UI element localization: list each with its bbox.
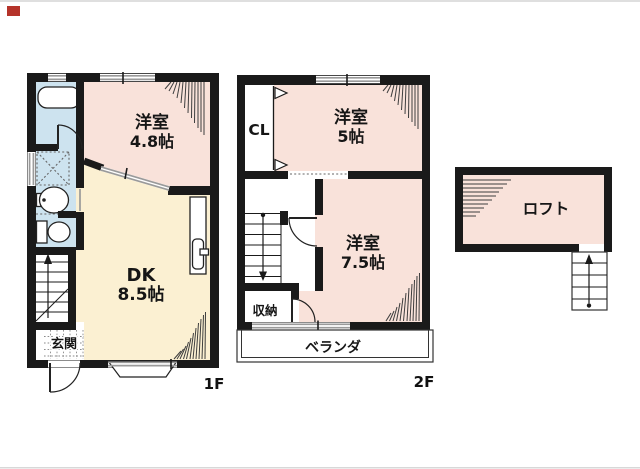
veranda: ベランダ [237,330,433,362]
floorplan-image: 洋室 4.8帖 DK 8.5帖 玄関 1F [0,0,640,469]
room75-size: 7.5帖 [341,253,385,272]
room5-name: 洋室 [334,107,368,128]
kitchen-counter [190,197,209,274]
stairwell-floor-1f [36,247,68,322]
storage-label: 収納 [252,303,277,318]
loft-ladder [572,252,607,310]
room48-name: 洋室 [135,112,169,133]
entrance-label: 玄関 [51,336,77,352]
room75-name: 洋室 [346,233,380,254]
closet-label: CL [248,121,269,139]
kitchen-faucet [200,249,209,255]
room48-size: 4.8帖 [130,132,174,151]
toilet [37,221,71,243]
floor1-plan: 洋室 4.8帖 DK 8.5帖 玄関 1F [27,72,224,393]
red-marker [7,6,20,16]
veranda-label: ベランダ [305,339,361,356]
floor1-label: 1F [204,375,225,393]
floor2-label: 2F [414,373,435,391]
washroom-side-window [28,152,36,186]
bay-window [108,359,177,377]
dk-name: DK [127,265,157,286]
bathtub [38,87,80,108]
floor2-plan: ベランダ CL 洋室 5帖 洋室 7.5帖 収納 2F [237,74,434,391]
loft-label: ロフト [523,200,570,218]
dk-size: 8.5帖 [117,284,164,305]
floorplan-svg: 洋室 4.8帖 DK 8.5帖 玄関 1F [0,0,640,469]
bath-window [48,74,66,81]
room5-size: 5帖 [337,127,364,146]
western-room-75-floor-ext [299,291,315,322]
